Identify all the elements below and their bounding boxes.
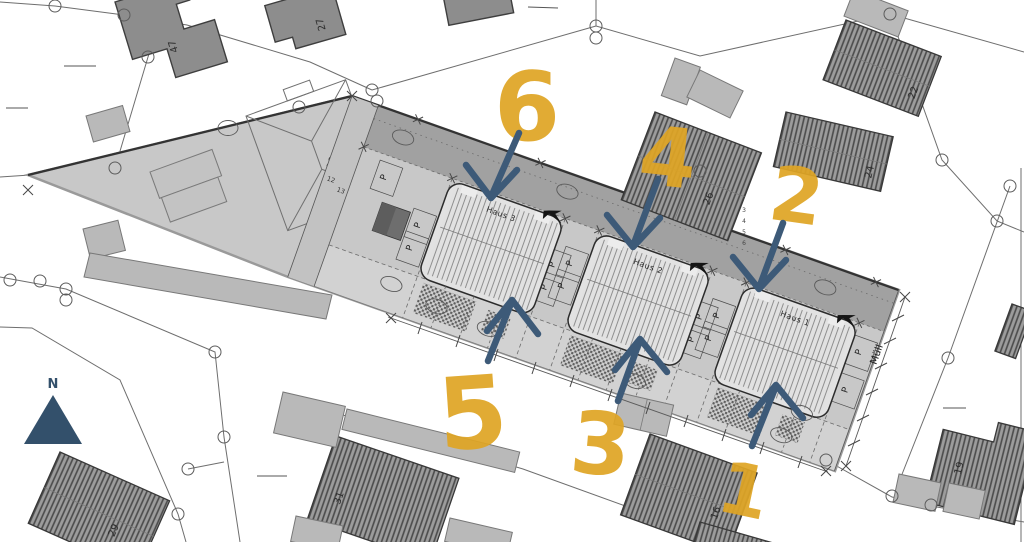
- garage-near-47: [86, 106, 130, 142]
- annotation-number-4: 4: [635, 108, 702, 208]
- annotation-number-1: 1: [711, 444, 777, 537]
- garage-bottom-b: [445, 518, 513, 542]
- building-22: 22: [823, 20, 941, 116]
- stall-number: 4: [742, 218, 746, 225]
- building-27: 27: [265, 0, 346, 54]
- building-top-center: [442, 0, 514, 25]
- garage-left: [83, 220, 125, 259]
- building-right-sliver: [995, 304, 1024, 359]
- stall-number: 3: [742, 207, 746, 214]
- annotation-number-2: 2: [764, 148, 829, 243]
- site-plan-svg: 28a 12 13: [0, 0, 1024, 542]
- building-31-front-a: [274, 392, 346, 447]
- stall-number: 5: [742, 229, 746, 236]
- north-arrow: N: [24, 377, 82, 444]
- annotation-number-3: 3: [566, 393, 634, 498]
- site-plan-page: 28a 12 13: [0, 0, 1024, 542]
- building-47: 47: [115, 0, 227, 88]
- stall-number-column: 3 4 5 6: [742, 207, 746, 247]
- annotation-number-6: 6: [494, 53, 560, 163]
- stall-number: 6: [742, 240, 746, 247]
- annotation-number-5: 5: [434, 353, 512, 475]
- north-label: N: [48, 377, 59, 392]
- building-29: 29: [28, 452, 169, 542]
- survey-cross: [23, 185, 33, 195]
- north-arrow-icon: [24, 395, 82, 444]
